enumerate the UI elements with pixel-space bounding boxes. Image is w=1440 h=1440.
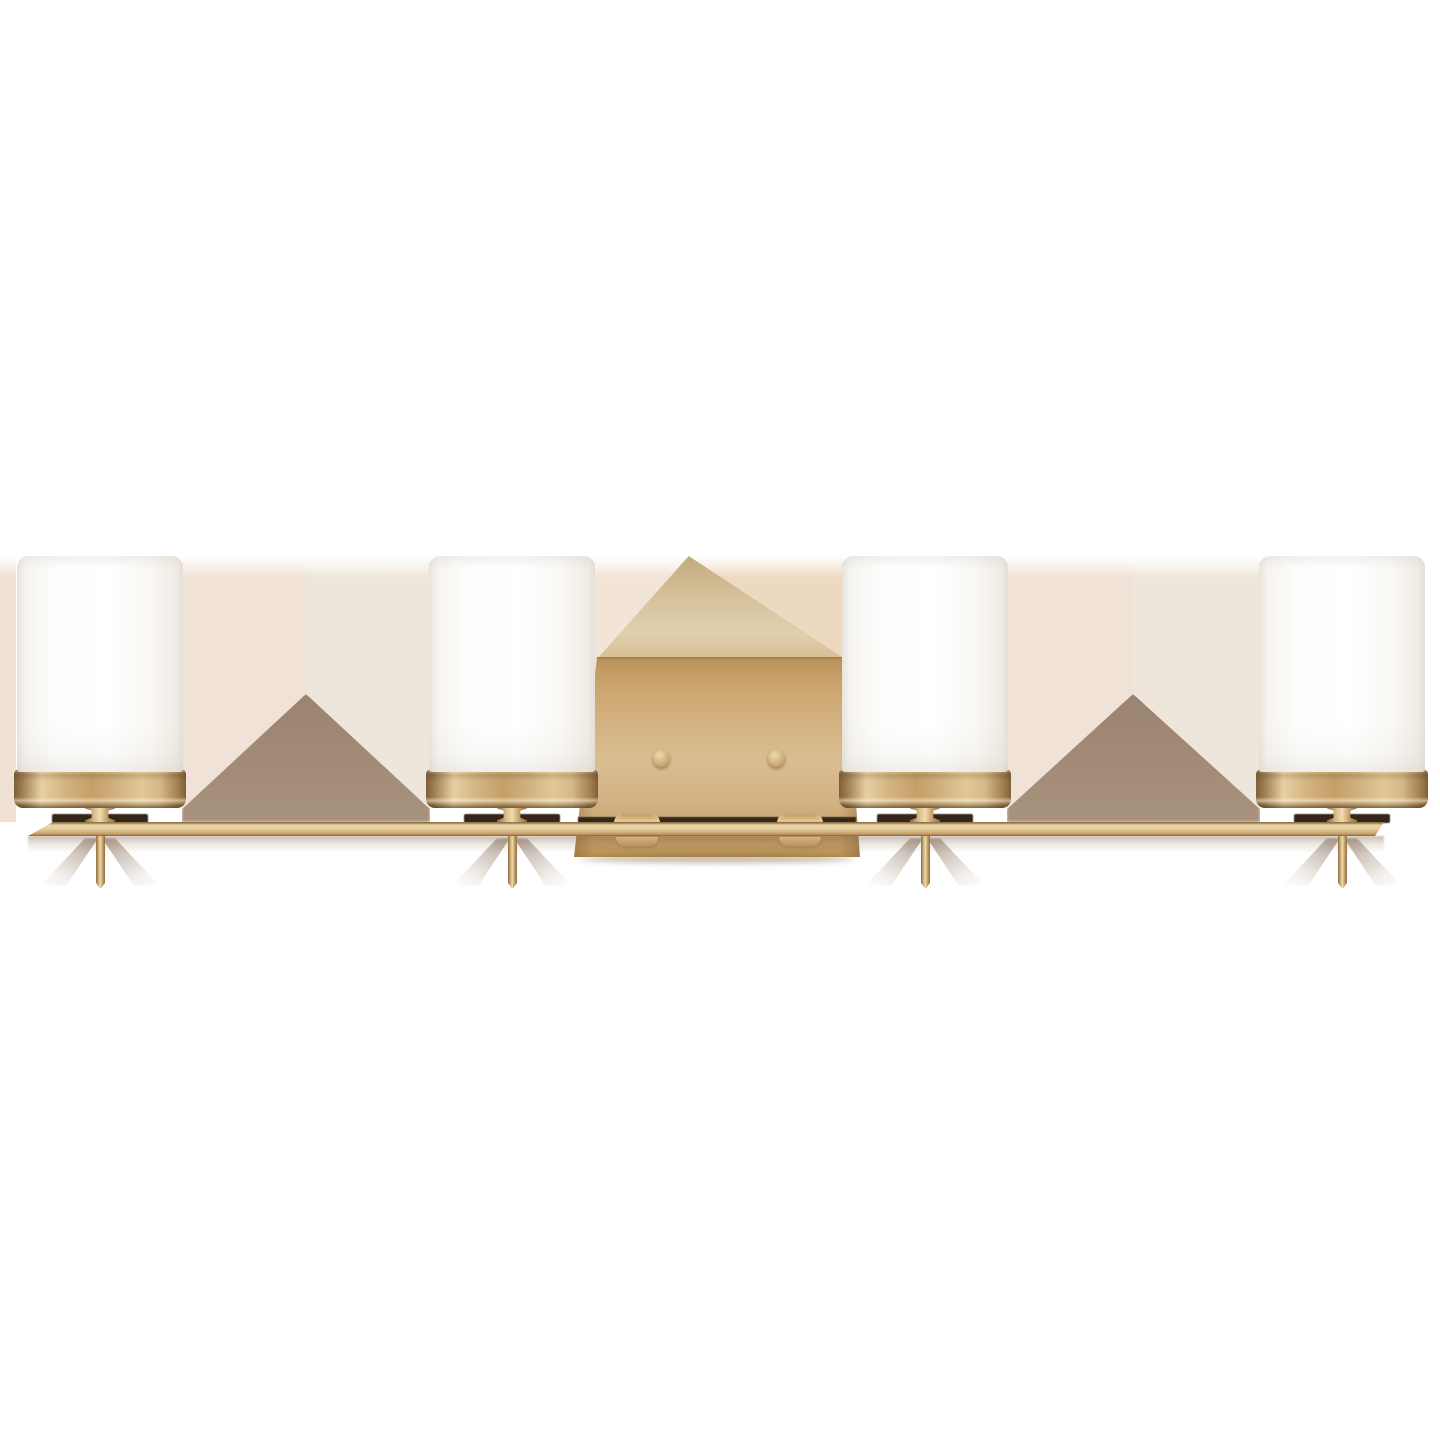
bar-drop-shadow: [28, 836, 1384, 853]
screw: [653, 750, 670, 767]
shadow-band-left: [0, 556, 8, 822]
drop-stem: [1338, 836, 1347, 888]
lower-mounting-tab: [779, 837, 821, 846]
glass-shade: [17, 556, 183, 772]
glass-shade: [842, 556, 1008, 772]
lower-mounting-tab: [616, 837, 658, 846]
brass-shade-holder: [839, 769, 1011, 808]
brass-shade-holder: [1256, 769, 1428, 808]
glass-shade: [429, 556, 595, 772]
brass-shade-holder: [14, 769, 186, 808]
drop-stem: [921, 836, 930, 888]
brass-shade-holder: [426, 769, 598, 808]
backplate-bottom-shadow: [580, 855, 854, 863]
product-photo-canvas: [0, 0, 1440, 1440]
glass-shade: [1259, 556, 1425, 772]
screw: [768, 750, 785, 767]
mounting-bar: [28, 822, 1384, 836]
drop-stem: [96, 836, 105, 888]
drop-stem: [508, 836, 517, 888]
